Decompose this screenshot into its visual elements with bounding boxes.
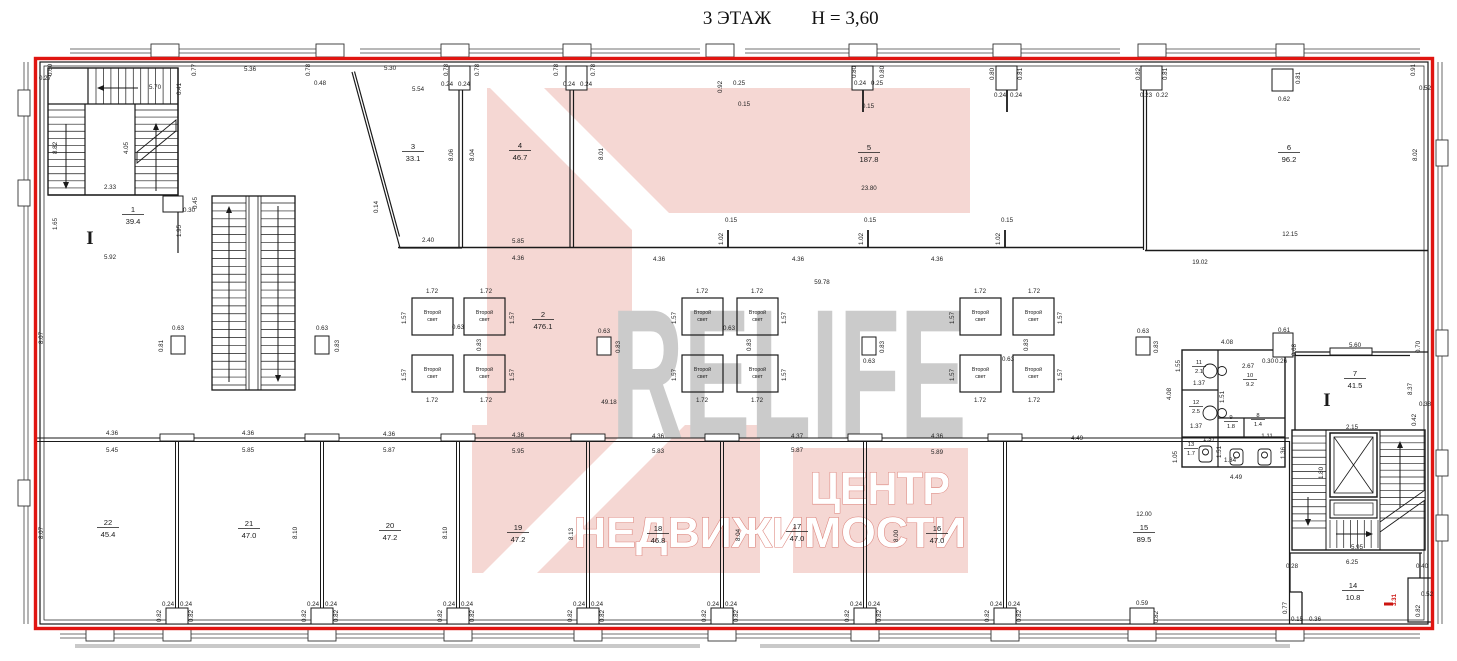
- dim-label: 0.83: [476, 338, 483, 351]
- room-number: 17: [793, 522, 801, 531]
- dim-label: 0.24: [325, 601, 338, 608]
- dim-label: 1.57: [509, 311, 516, 324]
- second-light-label: свет: [479, 374, 490, 380]
- watermark-brand-text: RELIFE: [612, 272, 967, 478]
- dim-label: 49.18: [601, 399, 617, 406]
- dim-label: 4.36: [512, 255, 525, 262]
- dim-label: 0.24: [461, 601, 474, 608]
- dim-label: 0.52: [1421, 591, 1434, 598]
- dim-label: 6.25: [1346, 559, 1359, 566]
- dim-label: 5.95: [512, 448, 525, 455]
- room-area: 476.1: [533, 322, 552, 331]
- second-light-label: свет: [752, 317, 763, 323]
- second-light-label: Второй: [424, 309, 441, 316]
- dim-label: 1.57: [949, 368, 956, 381]
- second-light-label: свет: [427, 374, 438, 380]
- room-area: 1.8: [1227, 424, 1235, 430]
- second-light-label: Второй: [749, 366, 766, 373]
- partition-column: [994, 608, 1016, 624]
- dim-label: 8.04: [469, 148, 476, 161]
- dim-label: 1.57: [781, 311, 788, 324]
- dim-label: 0.81: [1295, 71, 1302, 84]
- dim-label: 4.36: [242, 430, 255, 437]
- dim-label: 8.82: [52, 141, 59, 154]
- dim-label: 1.57: [1057, 311, 1064, 324]
- dim-label: 0.82: [437, 609, 444, 622]
- dim-label: 4.36: [383, 431, 396, 438]
- dim-label: 0.24: [591, 601, 604, 608]
- dim-label: 5.54: [412, 86, 425, 93]
- room-area: 1.7: [1187, 451, 1195, 457]
- dim-label: 0.22: [1156, 92, 1169, 99]
- room-label: 2245.4: [97, 518, 119, 539]
- second-light-label: Второй: [749, 309, 766, 316]
- dim-label: 0.77: [1282, 601, 1289, 614]
- wc-fixtures: [1199, 364, 1271, 465]
- dim-label: 12.00: [1136, 511, 1152, 518]
- dim-label: 1.37: [1203, 436, 1216, 443]
- dim-label: 0.15: [862, 103, 875, 110]
- dim-label: 8.07: [38, 331, 45, 344]
- dim-label: 8.02: [1412, 148, 1419, 161]
- dim-label: 0.14: [373, 200, 380, 213]
- second-light-label: свет: [975, 374, 986, 380]
- dim-label: 1.72: [696, 288, 709, 295]
- dim-label: 0.82: [1153, 610, 1160, 623]
- partition-pilaster: [848, 434, 882, 441]
- room-number: 5: [867, 143, 871, 152]
- room-area: 89.5: [1137, 535, 1152, 544]
- room-label: 333.1: [402, 142, 424, 163]
- second-light-label: Второй: [972, 309, 989, 316]
- dim-label: 1.57: [671, 311, 678, 324]
- room-label: 1589.5: [1133, 523, 1155, 544]
- dim-label: 1.57: [781, 368, 788, 381]
- partition-pilaster: [305, 434, 339, 441]
- dim-label: 0.80: [879, 65, 886, 78]
- dim-label: 0.63: [1137, 328, 1150, 335]
- stair-arrowhead: [97, 85, 104, 91]
- room-area: 2.1: [1195, 369, 1203, 375]
- dim-label: 0.15: [725, 217, 738, 224]
- room-number: 8: [1256, 413, 1259, 419]
- dim-label: 8.10: [292, 526, 299, 539]
- dim-label: 0.63: [1002, 356, 1015, 363]
- room-area: 47.0: [930, 536, 945, 545]
- dim-label: 0.36: [1309, 616, 1322, 623]
- dim-label: 0.24: [725, 601, 738, 608]
- dim-label: 0.25: [733, 80, 746, 87]
- room-area: 33.1: [406, 154, 421, 163]
- room-area: 2.5: [1192, 409, 1200, 415]
- dim-label: 0.59: [1136, 600, 1149, 607]
- dim-label: 0.15: [1291, 616, 1304, 623]
- dim-label: 8.10: [442, 526, 449, 539]
- dim-label: 0.81: [158, 339, 165, 352]
- dim-label: 4.49: [1071, 435, 1084, 442]
- dim-label: 4.36: [653, 256, 666, 263]
- room-label: 131.7: [1184, 442, 1198, 457]
- dim-label: 0.82: [876, 609, 883, 622]
- floor-plan-canvas: 3 ЭТАЖ Н = 3,60 RELIFE ЦЕНТР НЕДВИЖИМОСТ…: [0, 0, 1457, 661]
- dim-label: 2.15: [1346, 424, 1359, 431]
- dim-label: 59.78: [814, 279, 830, 286]
- second-light-label: свет: [1028, 317, 1039, 323]
- dim-label: 0.27: [39, 75, 52, 82]
- dim-label: 1.72: [1028, 288, 1041, 295]
- dim-label: 0.15: [738, 101, 751, 108]
- second-light-label: Второй: [1025, 366, 1042, 373]
- room-label: 109.2: [1243, 373, 1257, 388]
- partition-wall: [457, 441, 460, 608]
- partition-column: [711, 608, 733, 624]
- dim-label: 8.06: [448, 148, 455, 161]
- dim-label: 1.72: [426, 397, 439, 404]
- dim-label: 4.36: [931, 256, 944, 263]
- dim-label: 19.02: [1192, 259, 1208, 266]
- dim-label: 0.81: [1017, 67, 1024, 80]
- dim-label: 0.26: [1275, 358, 1288, 365]
- dim-label: 1.72: [974, 397, 987, 404]
- second-light-label: свет: [975, 317, 986, 323]
- room-number: 10: [1247, 373, 1253, 379]
- dim-label: 0.78: [474, 63, 481, 76]
- dim-label: 0.83: [879, 340, 886, 353]
- dim-label: 0.63: [316, 325, 329, 332]
- dim-label: 1.57: [949, 311, 956, 324]
- dim-label: 0.82: [1016, 609, 1023, 622]
- dim-label: 8.04: [735, 528, 742, 541]
- room-number: 20: [386, 521, 394, 530]
- dim-label: 4.05: [123, 141, 130, 154]
- page-title-floor: 3 ЭТАЖ: [703, 8, 772, 29]
- second-light-label: свет: [752, 374, 763, 380]
- dim-label: 23.80: [861, 185, 877, 192]
- dim-label: 0.24: [868, 601, 881, 608]
- dim-label: 4.49: [1230, 474, 1243, 481]
- dim-label: 5.83: [652, 448, 665, 455]
- dim-label: 1.11: [1261, 433, 1273, 440]
- dim-label: 1.51: [1219, 390, 1226, 403]
- dim-label: 4.37: [791, 433, 804, 440]
- dim-label: 0.48: [314, 80, 327, 87]
- section-mark: I: [1323, 390, 1330, 411]
- stair-arrowhead: [1366, 531, 1373, 537]
- dim-label: 5.89: [931, 449, 944, 456]
- dim-label: 0.82: [156, 609, 163, 622]
- dim-label: 5.60: [1349, 342, 1362, 349]
- dim-label: 0.45: [192, 196, 199, 209]
- page-title-height: Н = 3,60: [811, 8, 878, 29]
- second-light-label: свет: [479, 317, 490, 323]
- dim-label: 0.83: [334, 339, 341, 352]
- dim-label: 0.24: [563, 81, 576, 88]
- dim-label: 0.82: [1135, 67, 1142, 80]
- second-light-label: Второй: [1025, 309, 1042, 316]
- partition-column: [166, 608, 188, 624]
- dim-label: 0.24: [990, 601, 1003, 608]
- dim-label: 1.02: [858, 232, 865, 245]
- dim-label: 0.24: [1008, 601, 1021, 608]
- dim-label: 0.77: [191, 63, 198, 76]
- room-number: 13: [1188, 442, 1194, 448]
- partition-wall: [1004, 441, 1007, 608]
- dim-label: 0.24: [180, 601, 193, 608]
- dim-label: 8.37: [1407, 382, 1414, 395]
- dim-label: 0.82: [701, 609, 708, 622]
- dim-label: 0.78: [590, 63, 597, 76]
- watermark-company-line2: НЕДВИЖИМОСТИ: [574, 509, 966, 557]
- partition-column: [447, 608, 469, 624]
- dim-label: 0.25: [871, 80, 884, 87]
- dim-label: 0.82: [188, 609, 195, 622]
- dim-label: 0.68: [1291, 343, 1298, 356]
- dim-label: 8.13: [568, 527, 575, 540]
- watermark-column: [487, 213, 632, 458]
- partition-pilaster: [988, 434, 1022, 441]
- dim-label: 1.72: [1028, 397, 1041, 404]
- dim-label: 5.36: [244, 66, 257, 73]
- partition-column: [311, 608, 333, 624]
- dim-label: 0.24: [580, 81, 593, 88]
- stair-arrowhead: [275, 375, 281, 382]
- room-area: 187.8: [859, 155, 878, 164]
- dim-label: 5.87: [791, 447, 804, 454]
- dim-label: 1.57: [401, 311, 408, 324]
- dim-label: 1.34: [1224, 457, 1237, 464]
- partition-pilaster: [160, 434, 194, 441]
- dim-label: 0.83: [615, 340, 622, 353]
- room-label: 81.4: [1251, 413, 1265, 428]
- second-light-label: свет: [427, 317, 438, 323]
- dim-label: 0.40: [1416, 563, 1429, 570]
- dim-label: 0.24: [307, 601, 320, 608]
- dim-label: 0.42: [1411, 413, 1418, 426]
- dim-label: 1.37: [1190, 423, 1203, 430]
- dim-label: 0.24: [1010, 92, 1023, 99]
- room-area: 46.7: [513, 153, 528, 162]
- room-area: 9.2: [1246, 382, 1254, 388]
- dim-label: 0.41: [176, 82, 183, 95]
- room-label: 741.5: [1344, 369, 1366, 390]
- dim-label: 8.00: [893, 529, 900, 542]
- dim-label: 2.33: [104, 184, 117, 191]
- room-number: 4: [518, 141, 522, 150]
- dim-label: 0.63: [863, 358, 876, 365]
- room-number: 2: [541, 310, 545, 319]
- dim-label: 1.37: [1193, 380, 1206, 387]
- room-area: 96.2: [1282, 155, 1297, 164]
- dim-label: 0.24: [443, 601, 456, 608]
- dim-label: 0.82: [599, 609, 606, 622]
- dim-label: 0.82: [984, 609, 991, 622]
- dim-label: 0.82: [733, 609, 740, 622]
- dim-label: 4.08: [1166, 387, 1173, 400]
- room-number: 16: [933, 524, 941, 533]
- dim-label: 0.82: [333, 609, 340, 622]
- dim-label: 0.62: [1278, 96, 1291, 103]
- second-light-label: свет: [697, 374, 708, 380]
- dim-label: 0.82: [301, 609, 308, 622]
- dim-label: 1.72: [696, 397, 709, 404]
- dim-label: 0.24: [707, 601, 720, 608]
- room-number: 11: [1196, 360, 1202, 366]
- dim-label: 5.30: [384, 65, 397, 72]
- dim-label: 1.05: [1172, 450, 1179, 463]
- dim-label: 8.01: [598, 147, 605, 160]
- dim-label: 0.38: [1419, 401, 1432, 408]
- dim-label: 4.36: [652, 433, 665, 440]
- dim-label: 0.83: [1153, 340, 1160, 353]
- room-area: 39.4: [126, 217, 141, 226]
- dim-label: 4.36: [792, 256, 805, 263]
- second-light-label: Второй: [476, 366, 493, 373]
- dim-label: 5.85: [242, 447, 255, 454]
- dim-label: 0.63: [723, 325, 736, 332]
- partition-pilaster: [441, 434, 475, 441]
- watermark-company-line1: ЦЕНТР: [810, 463, 950, 514]
- dim-label: 3.31: [1391, 593, 1398, 606]
- dim-label: 0.83: [1023, 338, 1030, 351]
- dim-label: 2.67: [1242, 363, 1255, 370]
- dim-label: 1.57: [401, 368, 408, 381]
- room-number: 14: [1349, 581, 1357, 590]
- dim-label: 0.92: [717, 80, 724, 93]
- dim-label: 0.80: [851, 65, 858, 78]
- partition-column: [577, 608, 599, 624]
- room-number: 18: [654, 524, 662, 533]
- dim-label: 0.80: [989, 67, 996, 80]
- room-number: 3: [411, 142, 415, 151]
- dim-label: 1.65: [52, 217, 59, 230]
- room-label: 139.4: [122, 205, 144, 226]
- dim-label: 0.24: [573, 601, 586, 608]
- room-area: 41.5: [1348, 381, 1363, 390]
- dim-label: 5.70: [149, 84, 162, 91]
- dim-label: 0.78: [443, 63, 450, 76]
- dim-label: 0.15: [1001, 217, 1014, 224]
- stair-arrowhead: [226, 206, 232, 213]
- dim-label: 0.24: [854, 80, 867, 87]
- room-label: 696.2: [1278, 143, 1300, 164]
- dim-label: 0.15: [864, 217, 877, 224]
- dim-label: 1.57: [1057, 368, 1064, 381]
- room-number: 15: [1140, 523, 1148, 532]
- dim-label: 0.24: [850, 601, 863, 608]
- room-area: 47.2: [383, 533, 398, 542]
- dim-label: 1.02: [718, 232, 725, 245]
- dim-label: 0.78: [553, 63, 560, 76]
- dim-label: 1.02: [995, 232, 1002, 245]
- dim-label: 0.81: [1162, 67, 1169, 80]
- dim-label: 2.40: [422, 237, 435, 244]
- room-number: 21: [245, 519, 253, 528]
- dim-label: 5.45: [106, 447, 119, 454]
- room-area: 10.8: [1346, 593, 1361, 602]
- dim-label: 12.15: [1282, 231, 1298, 238]
- dim-label: 0.78: [305, 63, 312, 76]
- dim-label: 1.36: [1280, 446, 1287, 459]
- room-number: 1: [131, 205, 135, 214]
- dim-label: 0.83: [746, 338, 753, 351]
- dim-label: 1.72: [974, 288, 987, 295]
- dim-label: 1.51: [1216, 445, 1223, 458]
- dim-label: 1.57: [671, 368, 678, 381]
- room-area: 47.0: [242, 531, 257, 540]
- dim-label: 0.82: [469, 609, 476, 622]
- dim-label: 1.57: [509, 368, 516, 381]
- second-light-label: Второй: [476, 309, 493, 316]
- room-label: 2047.2: [379, 521, 401, 542]
- dim-label: 1.72: [751, 397, 764, 404]
- room-area: 46.8: [651, 536, 666, 545]
- dim-label: 0.23: [1140, 92, 1153, 99]
- section-mark: I: [86, 228, 93, 249]
- room-area: 47.0: [790, 534, 805, 543]
- dim-label: 4.08: [1221, 339, 1234, 346]
- second-light-label: свет: [697, 317, 708, 323]
- dim-label: 0.24: [441, 81, 454, 88]
- dim-label: 0.24: [994, 92, 1007, 99]
- second-light-label: Второй: [424, 366, 441, 373]
- dim-label: 8.07: [38, 526, 45, 539]
- dim-label: 0.63: [452, 324, 465, 331]
- dim-label: 0.82: [567, 609, 574, 622]
- dim-label: 1.80: [1318, 466, 1325, 479]
- dim-label: 4.36: [931, 433, 944, 440]
- stair-arrowhead: [1305, 519, 1311, 526]
- room-number: 7: [1353, 369, 1357, 378]
- room-area: 45.4: [101, 530, 116, 539]
- dim-label: 5.85: [512, 238, 525, 245]
- dim-label: 0.91: [1410, 63, 1417, 76]
- dim-label: 1.72: [751, 288, 764, 295]
- second-light-label: Второй: [694, 309, 711, 316]
- dim-label: 4.36: [512, 432, 525, 439]
- room-label: 2147.0: [238, 519, 260, 540]
- partition-wall: [321, 441, 324, 608]
- room-label: 122.5: [1189, 400, 1203, 415]
- second-light-label: Второй: [694, 366, 711, 373]
- room-area: 47.2: [511, 535, 526, 544]
- partition-pilaster: [705, 434, 739, 441]
- dim-label: 1.72: [426, 288, 439, 295]
- room-label: 1410.8: [1342, 581, 1364, 602]
- dim-label: 4.36: [106, 430, 119, 437]
- dim-label: 0.24: [162, 601, 175, 608]
- dim-label: 0.82: [844, 609, 851, 622]
- partition-column: [854, 608, 876, 624]
- dim-label: 1.72: [480, 288, 493, 295]
- dim-label: 0.63: [172, 325, 185, 332]
- room-area: 1.4: [1254, 422, 1263, 428]
- stair-arrowhead: [1397, 441, 1403, 448]
- dim-label: 0.82: [1415, 604, 1422, 617]
- room-number: 19: [514, 523, 522, 532]
- dim-label: 0.24: [458, 81, 471, 88]
- second-light-label: Второй: [972, 366, 989, 373]
- dim-label: 0.28: [1286, 563, 1299, 570]
- room-number: 12: [1193, 400, 1199, 406]
- second-light-label: свет: [1028, 374, 1039, 380]
- room-label: 91.8: [1224, 415, 1238, 430]
- floor-plan-page: 3 ЭТАЖ Н = 3,60 RELIFE ЦЕНТР НЕДВИЖИМОСТ…: [0, 0, 1457, 661]
- partition-pilaster: [571, 434, 605, 441]
- room-number: 9: [1229, 415, 1232, 421]
- dim-label: 0.30: [1262, 358, 1275, 365]
- room-number: 22: [104, 518, 112, 527]
- dim-label: 5.92: [104, 254, 117, 261]
